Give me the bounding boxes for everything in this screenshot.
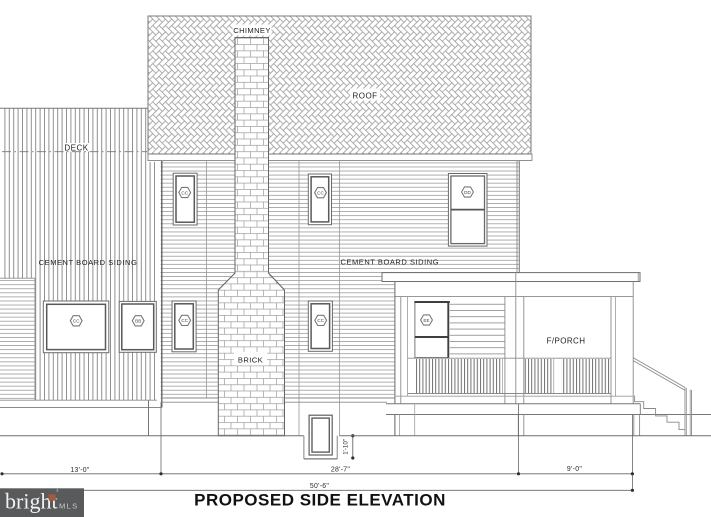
svg-text:CC: CC	[73, 319, 80, 324]
svg-text:EE: EE	[423, 318, 429, 323]
svg-text:CEMENT BOARD SIDING: CEMENT BOARD SIDING	[39, 258, 138, 267]
svg-text:F/PORCH: F/PORCH	[547, 336, 586, 345]
svg-text:9'-0": 9'-0"	[567, 466, 582, 473]
svg-text:CC: CC	[317, 191, 324, 196]
svg-text:MLS: MLS	[59, 502, 79, 511]
svg-text:ROOF: ROOF	[352, 92, 377, 101]
svg-text:PROPOSED SIDE ELEVATION: PROPOSED SIDE ELEVATION	[194, 491, 446, 510]
svg-text:DECK: DECK	[64, 143, 88, 152]
svg-text:CEMENT BOARD SIDING: CEMENT BOARD SIDING	[340, 258, 439, 267]
svg-text:1'-10": 1'-10"	[343, 439, 350, 455]
svg-text:BB: BB	[135, 319, 141, 324]
svg-text:13'-0": 13'-0"	[70, 467, 90, 474]
svg-text:CHIMNEY: CHIMNEY	[233, 26, 270, 35]
svg-text:28'-7": 28'-7"	[331, 466, 351, 473]
svg-text:CC: CC	[181, 318, 188, 323]
svg-text:CC: CC	[181, 190, 188, 195]
svg-text:DD: DD	[464, 190, 471, 195]
svg-text:50'-6": 50'-6"	[310, 483, 330, 490]
svg-text:CC: CC	[317, 318, 324, 323]
svg-text:BRICK: BRICK	[238, 355, 263, 364]
svg-text:bright: bright	[5, 489, 58, 514]
